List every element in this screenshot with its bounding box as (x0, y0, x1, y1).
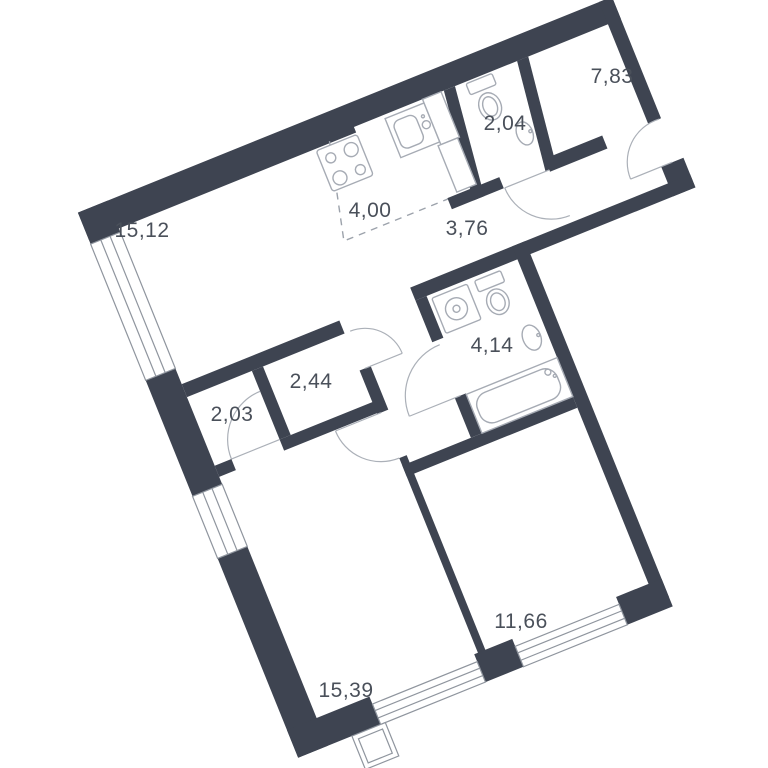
floor-plan-svg (0, 0, 768, 768)
bathroom-toilet-icon (474, 271, 515, 320)
wall-corridor-bottom (410, 174, 695, 300)
floor-plan-stage: 15,124,003,762,047,832,032,444,1415,3911… (0, 0, 768, 768)
wall-bedroom-top-bottom (545, 136, 608, 172)
washing-machine-icon (432, 284, 481, 333)
window-bottom-right (515, 604, 627, 666)
wall-bedrooms-divider (399, 455, 493, 671)
window-left-lower (193, 484, 248, 558)
door-wardrobe-right (350, 316, 402, 368)
wc-washbasin-icon (513, 119, 537, 147)
wc-toilet-icon (466, 73, 508, 124)
door-wc (505, 169, 570, 234)
wall-right-upper (599, 0, 661, 124)
bathroom-washbasin-icon (519, 322, 545, 353)
door-bathroom (389, 345, 461, 417)
wall-closet-divider (252, 366, 291, 439)
window-bottom-left (372, 662, 485, 725)
window-left-upper (91, 232, 176, 380)
wall-closet-bottom-b (280, 401, 381, 451)
